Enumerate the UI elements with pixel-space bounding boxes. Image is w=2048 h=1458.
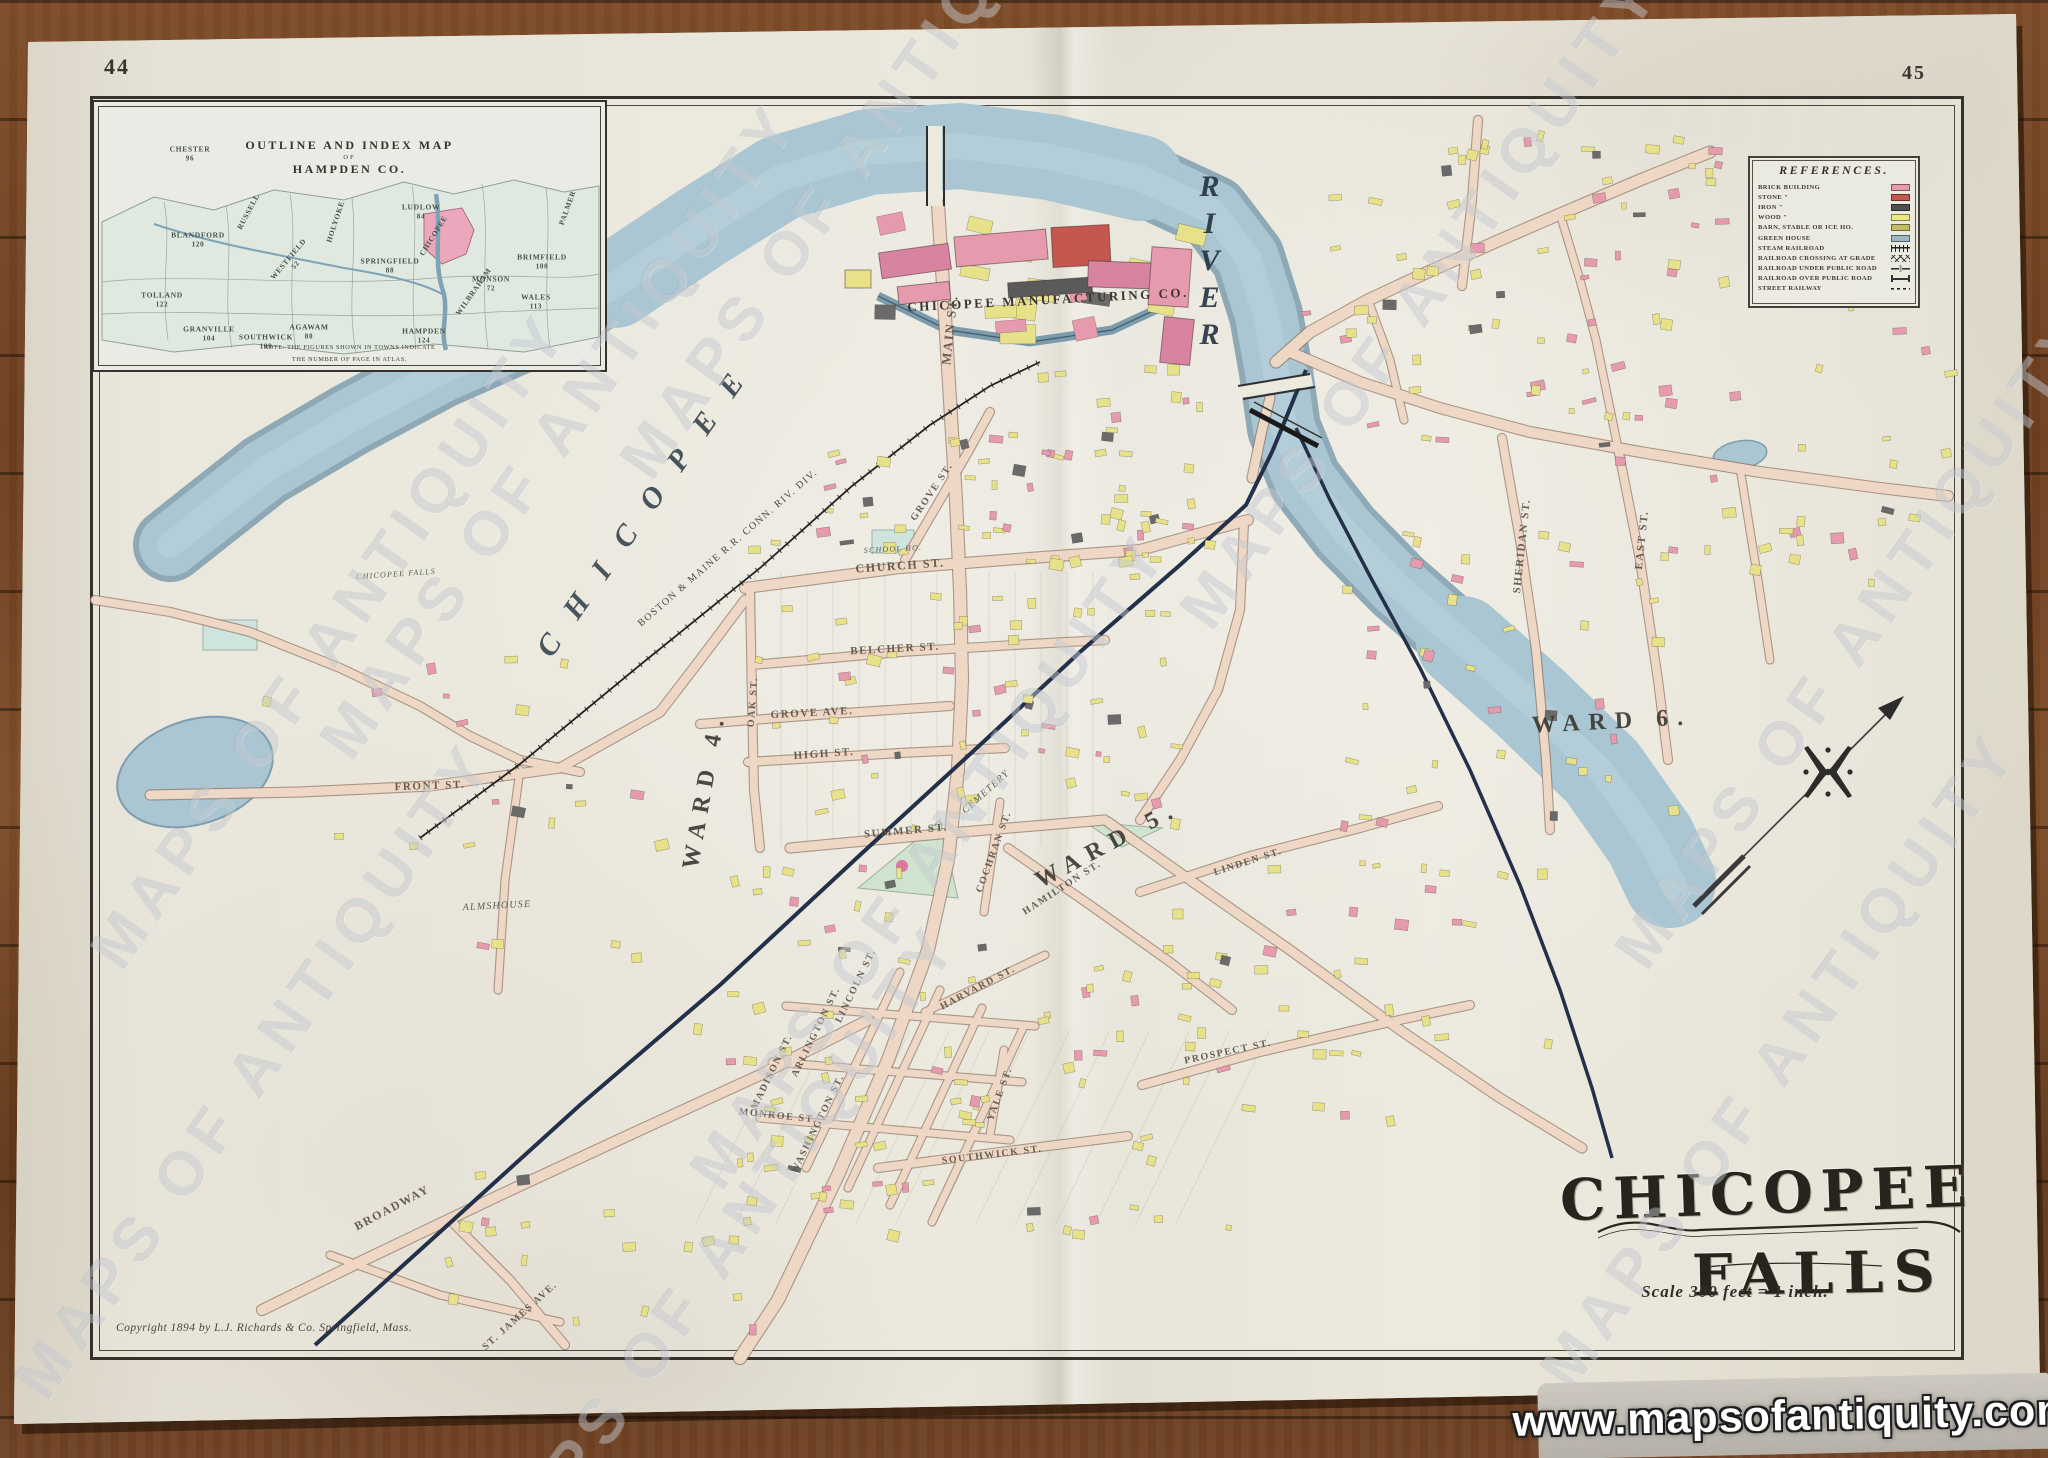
reference-swatch (1891, 245, 1910, 252)
reference-item: STEAM RAILROAD (1758, 243, 1910, 253)
reference-swatch (1891, 214, 1910, 221)
town-page-number: 96 (170, 154, 211, 162)
reference-label: GREEN HOUSE (1758, 235, 1811, 242)
town-name: SOUTHWICK (239, 333, 293, 342)
reference-item: RAILROAD OVER PUBLIC ROAD (1758, 274, 1910, 284)
town-name: HAMPDEN (402, 327, 446, 336)
town-page-number: 84 (402, 212, 440, 220)
reference-swatch (1891, 255, 1910, 262)
reference-label: BARN, STABLE OR ICE HO. (1758, 224, 1853, 231)
town-page-number: 72 (472, 284, 510, 292)
bridge-main-street (927, 126, 944, 206)
town-name: TOLLAND (141, 291, 183, 300)
town-label: SPRINGFIELD 88 (361, 258, 420, 275)
copyright-line: Copyright 1894 by L.J. Richards & Co. Sp… (116, 1322, 412, 1334)
reference-label: RAILROAD UNDER PUBLIC ROAD (1758, 265, 1877, 272)
seller-url: www.mapsofantiquity.com (1512, 1386, 2048, 1447)
reference-label: RAILROAD OVER PUBLIC ROAD (1758, 275, 1872, 282)
reference-item: STREET RAILWAY (1758, 284, 1910, 294)
reference-swatch (1891, 265, 1910, 272)
seller-url-strip: www.mapsofantiquity.com (1537, 1373, 2048, 1458)
town-name: GRANVILLE (183, 325, 235, 334)
inset-title-county: HAMPDEN CO. (94, 162, 605, 177)
town-name: LUDLOW (402, 203, 440, 212)
reference-label: RAILROAD CROSSING AT GRADE (1758, 255, 1876, 262)
reference-swatch (1891, 184, 1910, 191)
town-label: BRIMFIELD 100 (517, 254, 567, 271)
town-label: CHESTER 96 (170, 146, 211, 163)
town-page-number: 80 (289, 332, 328, 340)
reference-item: BRICK BUILDING (1758, 182, 1910, 192)
references-legend: REFERENCES. BRICK BUILDING STONE " IRON … (1748, 156, 1920, 308)
reference-label: STEAM RAILROAD (1758, 245, 1825, 252)
town-page-number: 100 (517, 262, 567, 270)
reference-item: STONE " (1758, 192, 1910, 202)
reference-swatch (1891, 224, 1910, 231)
town-page-number: 122 (141, 300, 183, 308)
reference-swatch (1891, 204, 1910, 211)
town-name: BLANDFORD (171, 231, 225, 240)
reference-swatch (1891, 235, 1910, 242)
town-label: BLANDFORD 120 (171, 232, 225, 249)
reference-label: STONE " (1758, 194, 1788, 201)
town-page-number: 104 (183, 334, 235, 342)
town-name: SPRINGFIELD (361, 257, 420, 266)
river-name-lower: RIVER (1192, 170, 1226, 355)
reference-item: RAILROAD CROSSING AT GRADE (1758, 253, 1910, 263)
reference-swatch (1891, 285, 1910, 292)
reference-swatch (1891, 275, 1910, 282)
reference-item: BARN, STABLE OR ICE HO. (1758, 223, 1910, 233)
reference-item: IRON " (1758, 202, 1910, 212)
reference-item: GREEN HOUSE (1758, 233, 1910, 243)
town-label: HAMPDEN 124 (402, 328, 446, 345)
town-name: BRIMFIELD (517, 253, 567, 262)
reference-label: STREET RAILWAY (1758, 285, 1822, 292)
references-title: REFERENCES. (1758, 163, 1910, 178)
reference-swatch (1891, 194, 1910, 201)
references-items: BRICK BUILDING STONE " IRON " WOOD " (1758, 182, 1910, 294)
reference-label: IRON " (1758, 204, 1783, 211)
map-scale-note: Scale 300 feet = 1 inch. (1641, 1282, 1829, 1302)
town-page-number: 88 (361, 266, 420, 274)
reference-item: RAILROAD UNDER PUBLIC ROAD (1758, 264, 1910, 274)
town-label: AGAWAM 80 (289, 324, 328, 341)
town-name: MONSON (472, 275, 510, 284)
town-label: MONSON 72 (472, 276, 510, 293)
reference-label: WOOD " (1758, 214, 1787, 221)
reference-label: BRICK BUILDING (1758, 184, 1820, 191)
reference-item: WOOD " (1758, 213, 1910, 223)
town-label: LUDLOW 84 (402, 204, 440, 221)
town-page-number: 120 (171, 240, 225, 248)
town-name: AGAWAM (289, 323, 328, 332)
town-name: CHESTER (170, 145, 211, 154)
town-label: TOLLAND 122 (141, 292, 183, 309)
town-label: GRANVILLE 104 (183, 326, 235, 343)
antique-map-photo: 44 45 (0, 0, 2048, 1458)
